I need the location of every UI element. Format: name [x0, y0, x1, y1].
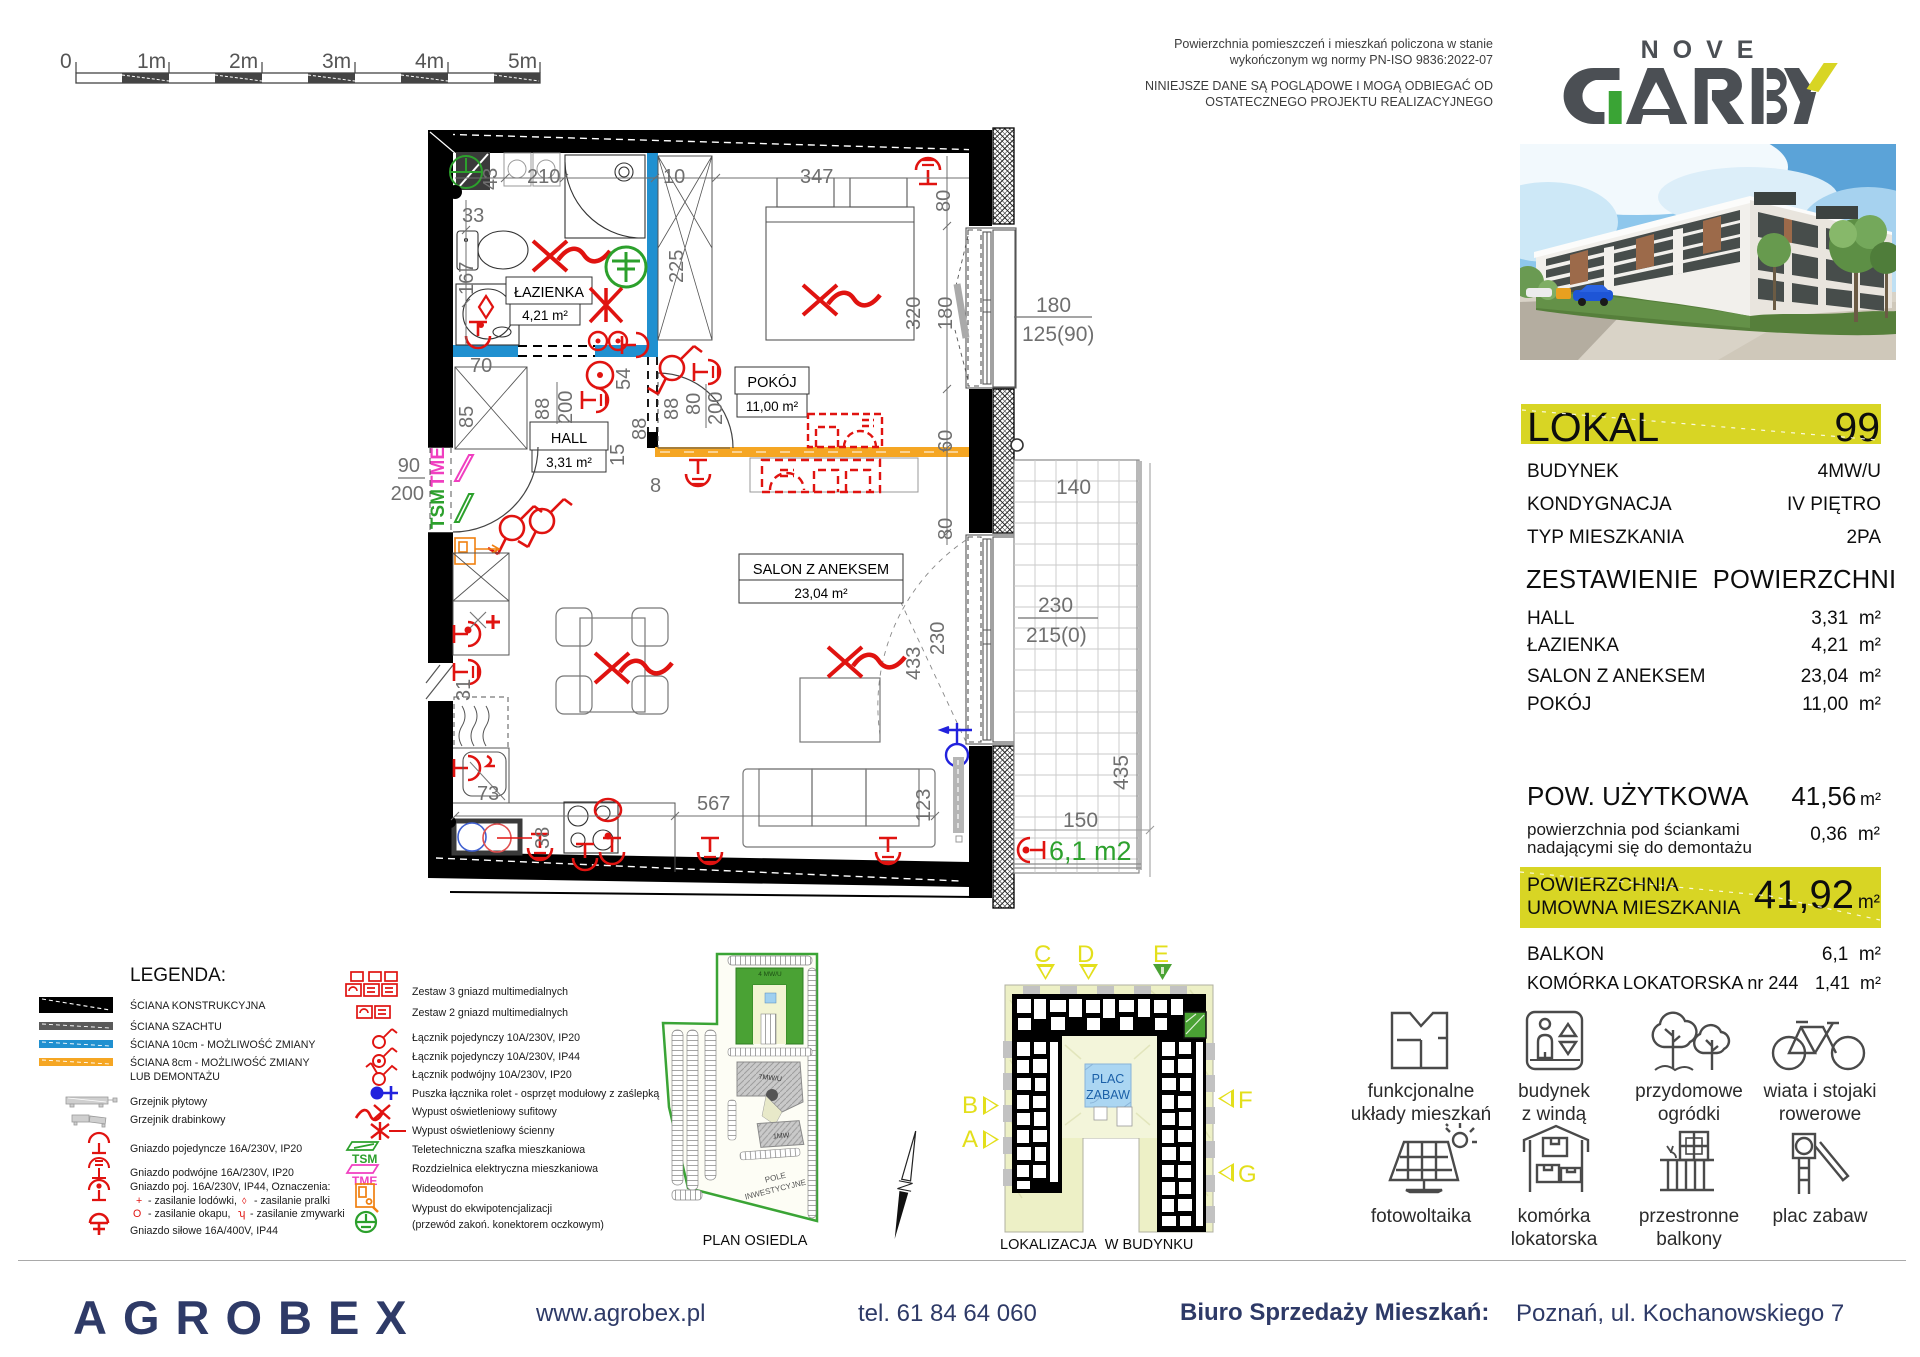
svg-text:TSM: TSM — [428, 489, 449, 529]
svg-text:ŚCIANA SZACHTU: ŚCIANA SZACHTU — [130, 1020, 222, 1033]
svg-text:SALON Z ANEKSEM: SALON Z ANEKSEM — [753, 562, 889, 578]
svg-text:435: 435 — [1110, 755, 1133, 790]
svg-text:z windą: z windą — [1522, 1104, 1587, 1125]
svg-text:31: 31 — [453, 679, 475, 701]
svg-text:Zestaw 2 gniazd multimedialnyc: Zestaw 2 gniazd multimedialnych — [412, 1007, 568, 1019]
svg-text:◊: ◊ — [242, 1196, 247, 1206]
svg-text:B: B — [962, 1092, 978, 1119]
svg-text:Gniazdo poj. 16A/230V, IP44, O: Gniazdo poj. 16A/230V, IP44, Oznaczenia: — [130, 1181, 330, 1193]
svg-text:przydomowe: przydomowe — [1635, 1081, 1743, 1102]
svg-text:Łącznik pojedynczy 10A/230V, I: Łącznik pojedynczy 10A/230V, IP20 — [412, 1032, 580, 1044]
svg-text:Gniazdo podwójne 16A/230V, IP2: Gniazdo podwójne 16A/230V, IP20 — [130, 1167, 294, 1179]
svg-text:HALL: HALL — [551, 431, 587, 447]
svg-text:wiata i stojaki: wiata i stojaki — [1763, 1081, 1877, 1102]
svg-text:2m: 2m — [229, 50, 258, 73]
svg-text:4m: 4m — [415, 50, 444, 73]
svg-text:433: 433 — [903, 647, 925, 680]
svg-text:4,21 m²: 4,21 m² — [522, 308, 568, 323]
svg-text:balkony: balkony — [1656, 1229, 1722, 1250]
svg-text:347: 347 — [800, 166, 833, 188]
svg-text:70: 70 — [470, 355, 492, 377]
svg-text:ŚCIANA 8cm - MOŻLIWOŚĆ ZMIANY: ŚCIANA 8cm - MOŻLIWOŚĆ ZMIANY — [130, 1056, 310, 1069]
svg-text:- zasilanie zmywarki: - zasilanie zmywarki — [250, 1208, 345, 1220]
svg-text:210: 210 — [527, 166, 560, 188]
svg-text:ŚCIANA 10cm - MOŻLIWOŚĆ ZMIANY: ŚCIANA 10cm - MOŻLIWOŚĆ ZMIANY — [130, 1038, 315, 1051]
svg-text:85: 85 — [456, 406, 478, 428]
svg-text:90: 90 — [398, 455, 420, 477]
svg-text:11,00 m²: 11,00 m² — [746, 399, 799, 414]
svg-text:Wypust do ekwipotencjalizacji: Wypust do ekwipotencjalizacji — [412, 1203, 552, 1215]
svg-text:10: 10 — [663, 166, 685, 188]
svg-text:180: 180 — [1036, 294, 1071, 317]
svg-text:15: 15 — [607, 444, 629, 466]
svg-text:Łącznik pojedynczy 10A/230V, I: Łącznik pojedynczy 10A/230V, IP44 — [412, 1051, 580, 1063]
svg-text:Gniazdo pojedyncze 16A/230V, I: Gniazdo pojedyncze 16A/230V, IP20 — [130, 1143, 302, 1155]
svg-text:Wypust oświetleniowy ścienny: Wypust oświetleniowy ścienny — [412, 1125, 555, 1137]
svg-text:POKÓJ: POKÓJ — [747, 374, 796, 391]
svg-text:Grzejnik drabinkowy: Grzejnik drabinkowy — [130, 1114, 226, 1126]
svg-text:plac zabaw: plac zabaw — [1772, 1206, 1867, 1227]
svg-text:komórka: komórka — [1518, 1206, 1591, 1227]
svg-text:G: G — [1238, 1161, 1257, 1188]
svg-text:ZABAW: ZABAW — [1086, 1088, 1130, 1102]
svg-text:180: 180 — [935, 297, 957, 330]
svg-text:567: 567 — [697, 793, 730, 815]
svg-text:+: + — [136, 1195, 142, 1207]
svg-text:3,31 m²: 3,31 m² — [546, 455, 592, 470]
svg-text:Zestaw 3 gniazd multimedialnyc: Zestaw 3 gniazd multimedialnych — [412, 986, 568, 998]
svg-text:73: 73 — [477, 783, 499, 805]
svg-text:23,04 m²: 23,04 m² — [794, 586, 848, 601]
svg-text:- zasilanie lodówki,: - zasilanie lodówki, — [148, 1195, 237, 1207]
svg-text:D: D — [1077, 941, 1094, 968]
svg-text:rowerowe: rowerowe — [1779, 1104, 1861, 1125]
svg-text:1m: 1m — [137, 50, 166, 73]
svg-text:NOVE: NOVE — [1641, 36, 1768, 64]
svg-text:ŚCIANA KONSTRUKCYJNA: ŚCIANA KONSTRUKCYJNA — [130, 999, 266, 1012]
svg-text:lokatorska: lokatorska — [1511, 1229, 1598, 1250]
svg-text:Gniazdo siłowe 16A/400V, IP44: Gniazdo siłowe 16A/400V, IP44 — [130, 1225, 278, 1237]
svg-text:38: 38 — [532, 827, 554, 849]
svg-text:przestronne: przestronne — [1639, 1206, 1739, 1227]
svg-text:układy mieszkań: układy mieszkań — [1351, 1104, 1491, 1125]
svg-text:125(90): 125(90) — [1022, 323, 1094, 346]
svg-text:88: 88 — [661, 398, 683, 420]
svg-text:funkcjonalne: funkcjonalne — [1368, 1081, 1475, 1102]
svg-text:54: 54 — [613, 368, 635, 390]
svg-text:0: 0 — [60, 50, 72, 73]
svg-text:LEGENDA:: LEGENDA: — [130, 965, 226, 986]
svg-text:Grzejnik płytowy: Grzejnik płytowy — [130, 1096, 208, 1108]
svg-text:TSM: TSM — [352, 1152, 377, 1166]
svg-text:budynek: budynek — [1518, 1081, 1590, 1102]
svg-text:43: 43 — [480, 168, 502, 190]
svg-text:Rozdzielnica elektryczna miesz: Rozdzielnica elektryczna mieszkaniowa — [412, 1163, 598, 1175]
svg-text:Puszka łącznika rolet - osprzę: Puszka łącznika rolet - osprzęt modułowy… — [412, 1088, 659, 1100]
svg-text:140: 140 — [1056, 476, 1091, 499]
svg-text:230: 230 — [927, 622, 949, 655]
svg-text:ogródki: ogródki — [1658, 1104, 1720, 1125]
svg-text:3m: 3m — [322, 50, 351, 73]
svg-text:E: E — [1153, 941, 1169, 968]
svg-text:123: 123 — [913, 789, 935, 822]
svg-text:5m: 5m — [508, 50, 537, 73]
svg-text:1MW: 1MW — [773, 1132, 790, 1140]
svg-text:167: 167 — [456, 262, 478, 295]
svg-text:ŁAZIENKA: ŁAZIENKA — [514, 285, 584, 301]
svg-text:200: 200 — [555, 391, 577, 424]
svg-text:80: 80 — [935, 518, 957, 540]
svg-text:80: 80 — [933, 190, 955, 212]
svg-text:Wypust oświetleniowy sufitowy: Wypust oświetleniowy sufitowy — [412, 1106, 557, 1118]
svg-text:C: C — [1034, 941, 1051, 968]
svg-text:A: A — [962, 1126, 978, 1153]
svg-text:215(0): 215(0) — [1026, 624, 1087, 647]
svg-text:F: F — [1238, 1087, 1253, 1114]
svg-text:80: 80 — [683, 393, 705, 415]
svg-text:230: 230 — [1038, 594, 1073, 617]
svg-text:200: 200 — [705, 392, 727, 425]
svg-text:LUB DEMONTAŻU: LUB DEMONTAŻU — [130, 1070, 220, 1083]
svg-text:ʮ: ʮ — [238, 1208, 245, 1220]
svg-text:320: 320 — [903, 297, 925, 330]
svg-text:8: 8 — [650, 475, 661, 497]
svg-text:150: 150 — [1063, 809, 1098, 832]
svg-text:88: 88 — [532, 398, 554, 420]
svg-text:4 MW/U: 4 MW/U — [758, 971, 782, 978]
svg-text:225: 225 — [666, 250, 688, 283]
svg-text:200: 200 — [391, 483, 424, 505]
svg-text:fotowoltaika: fotowoltaika — [1371, 1206, 1472, 1227]
svg-text:(przewód zakoń. konektorem ocz: (przewód zakoń. konektorem oczkowym) — [412, 1219, 604, 1231]
svg-text:88: 88 — [629, 418, 651, 440]
svg-text:TME: TME — [428, 447, 449, 487]
svg-text:Łącznik podwójny 10A/230V, IP2: Łącznik podwójny 10A/230V, IP20 — [412, 1069, 572, 1081]
svg-text:- zasilanie pralki: - zasilanie pralki — [254, 1195, 330, 1207]
svg-text:- zasilanie okapu,: - zasilanie okapu, — [148, 1208, 230, 1220]
svg-text:33: 33 — [462, 205, 484, 227]
svg-text:Wideodomofon: Wideodomofon — [412, 1183, 483, 1195]
svg-text:6,1 m2: 6,1 m2 — [1049, 836, 1132, 866]
svg-text:PLAC: PLAC — [1092, 1072, 1125, 1086]
svg-text:Teletechniczna szafka mieszkan: Teletechniczna szafka mieszkaniowa — [412, 1144, 585, 1156]
svg-text:O: O — [133, 1208, 141, 1220]
